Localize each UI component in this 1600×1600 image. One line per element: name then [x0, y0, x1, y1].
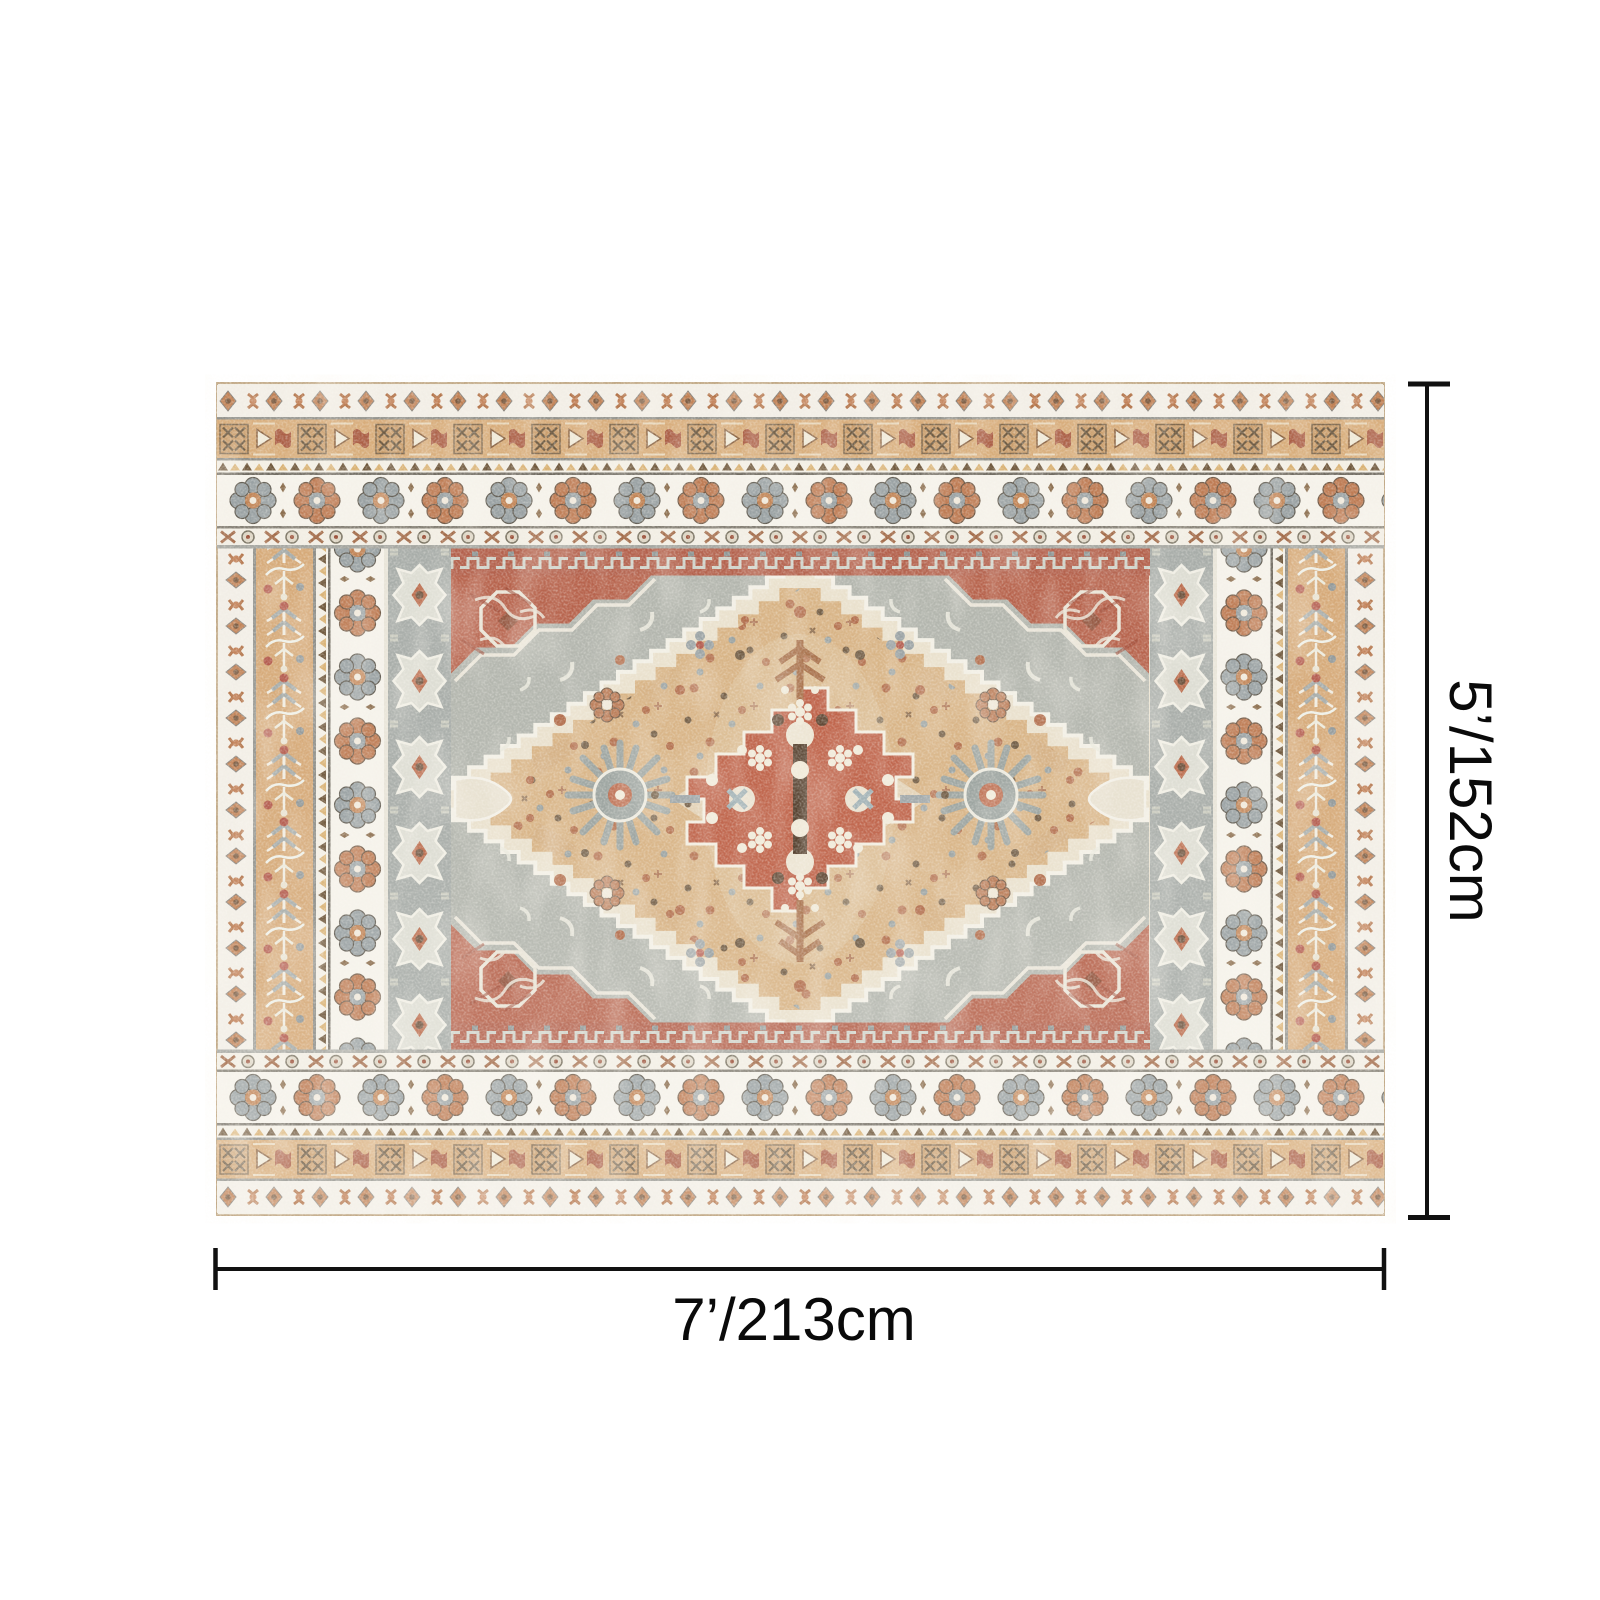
svg-text:5’/152cm: 5’/152cm	[1437, 679, 1504, 922]
svg-text:7’/213cm: 7’/213cm	[672, 1286, 915, 1353]
